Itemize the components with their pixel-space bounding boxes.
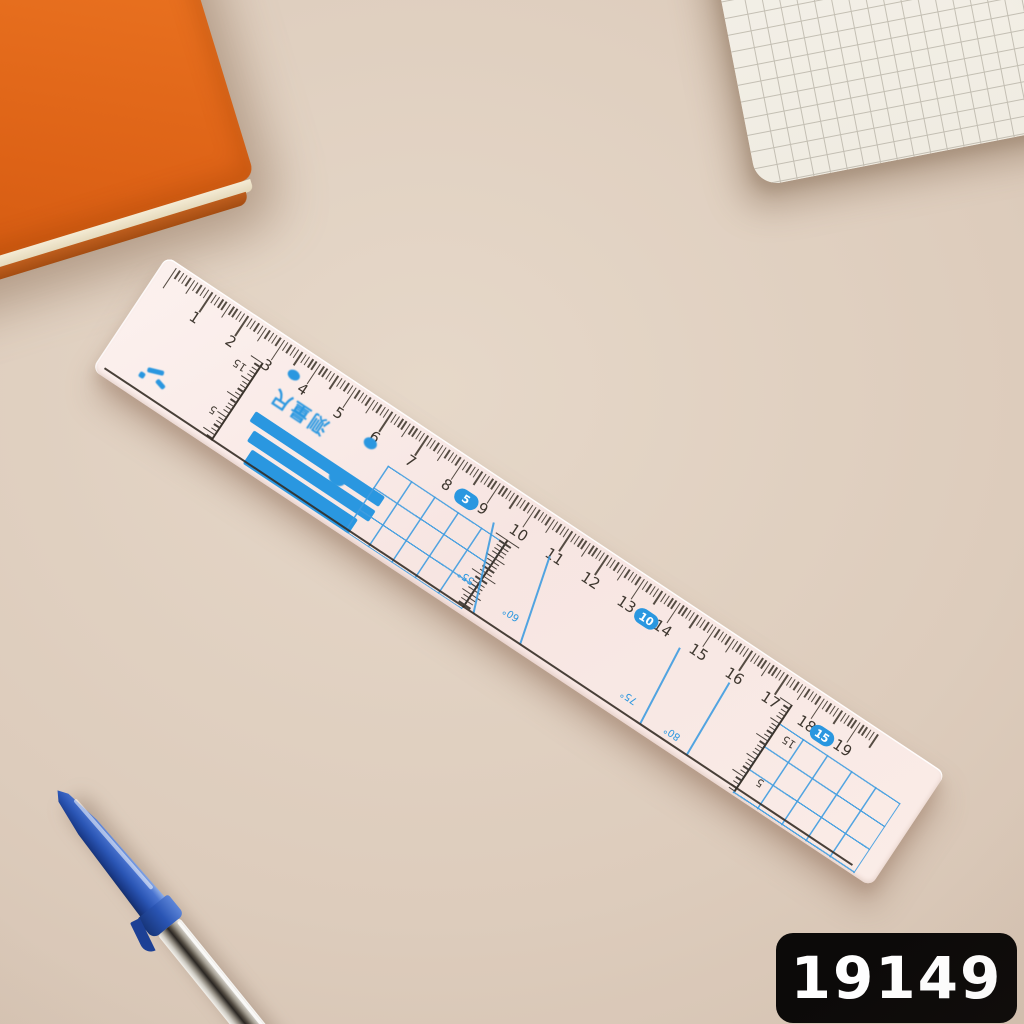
mini-scale-tick (759, 740, 765, 745)
ruler-number: 2 (222, 331, 240, 351)
mini-scale-tick (742, 765, 748, 770)
mini-scale-tick (230, 398, 236, 403)
mini-scale-tick (768, 726, 774, 731)
ruler-number: 8 (438, 475, 456, 495)
ruler-number: 4 (294, 379, 312, 399)
mini-scale-tick (757, 744, 763, 749)
mini-scale-tick (249, 369, 255, 374)
mini-scale-tick (747, 758, 753, 763)
product-photo: 测量尺 123456789101112131415161718195101515… (0, 0, 1024, 1024)
angle-label: 75° (619, 687, 640, 706)
pen-barrel (158, 918, 308, 1024)
sku-text: 19149 (791, 944, 1003, 1012)
ruler-bottom-line (104, 367, 853, 865)
mini-scale-tick (242, 380, 248, 385)
mini-scale-tick (780, 697, 792, 705)
mini-scale-tick (740, 769, 746, 774)
mini-scale-tick (215, 420, 221, 425)
ruler-number: 1 (186, 307, 204, 327)
ruler-number: 12 (578, 568, 604, 594)
mini-scale-label: 15 (230, 356, 249, 375)
mini-scale-tick (211, 427, 217, 432)
mini-scale-tick (780, 708, 786, 713)
blue-dot (286, 367, 302, 383)
ruler-number: 7 (402, 451, 420, 471)
mini-scale-tick (250, 355, 262, 363)
mini-scale-tick (764, 733, 770, 738)
mini-scale-tick (227, 402, 233, 407)
ruler-face: 测量尺 123456789101112131415161718195101515… (92, 256, 946, 887)
mini-scale-tick (213, 423, 219, 428)
angle-line (686, 682, 730, 755)
mini-scale-tick (254, 362, 260, 367)
mini-scale-tick (733, 780, 739, 785)
mini-scale-tick (735, 776, 741, 781)
mini-scale-tick (776, 715, 782, 720)
notepad-grid-lines (685, 0, 1024, 187)
mini-scale-tick (745, 762, 751, 767)
mini-scale-tick (234, 391, 240, 396)
ruler-number: 5 (330, 403, 348, 423)
angle-label: 60° (501, 604, 522, 623)
logo-squiggle (138, 371, 146, 379)
sku-badge: 19149 (776, 933, 1017, 1023)
mini-scale-tick (778, 711, 784, 716)
logo-squiggle (147, 367, 165, 376)
ruler-number: 15 (686, 640, 712, 666)
ruler: 测量尺 123456789101112131415161718195101515… (92, 256, 946, 887)
angle-line (519, 556, 550, 645)
mini-scale-tick (771, 722, 777, 727)
mini-scale-tick (752, 751, 758, 756)
mini-scale-line (211, 362, 264, 440)
mini-scale-tick (783, 704, 789, 709)
grid-notepad (685, 0, 1024, 187)
mini-scale-tick (237, 387, 243, 392)
mini-scale-tick (223, 409, 229, 414)
angle-line (639, 647, 680, 724)
orange-notebook (0, 0, 255, 303)
pen-cap (46, 780, 170, 923)
mini-scale-tick (251, 366, 257, 371)
mini-scale-tick (766, 729, 772, 734)
mini-scale-tick (218, 416, 224, 421)
blue-pen (36, 775, 316, 1024)
mini-scale-tick (246, 373, 252, 378)
mini-scale-tick (754, 747, 760, 752)
mini-scale-tick (239, 384, 245, 389)
mini-scale-tick (225, 405, 231, 410)
logo-squiggle (155, 379, 166, 391)
